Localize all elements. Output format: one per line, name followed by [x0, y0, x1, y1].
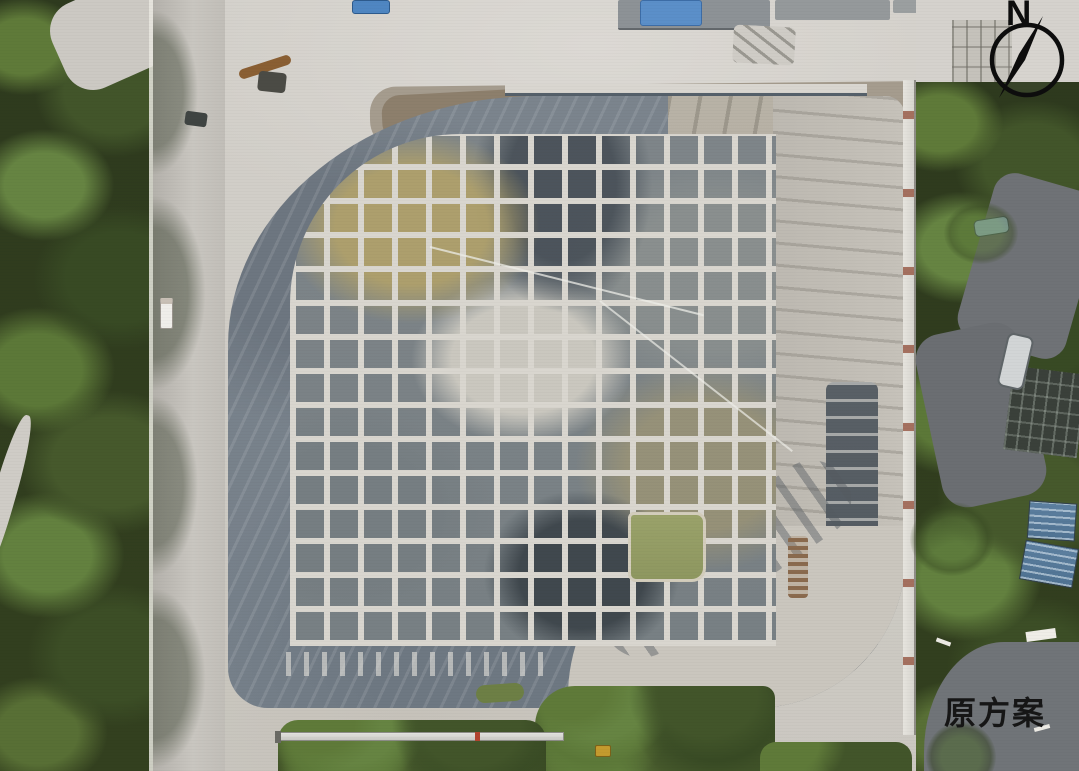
tree-clump: [910, 502, 994, 576]
road-marking: [936, 638, 951, 647]
east-grove: [916, 0, 1079, 771]
container: [775, 0, 890, 20]
east-boundary-wall: [903, 80, 916, 735]
pit-south-ribs: [286, 652, 552, 676]
excavator-body: [257, 71, 287, 94]
pipe-end: [275, 731, 281, 743]
excavation-pit: [228, 96, 905, 708]
vegetation-patch: [475, 682, 524, 703]
debris-pile: [732, 24, 796, 65]
pipe-marker: [475, 732, 480, 741]
east-tree-area: [916, 82, 1079, 771]
blue-roof-building: [1019, 540, 1079, 589]
rust-debris-patch: [788, 536, 808, 598]
parked-truck: [160, 298, 173, 329]
pit-capping-beam: [505, 84, 867, 96]
aerial-photo-canvas: N 原方案: [0, 0, 1079, 771]
road-sign: [1025, 628, 1056, 642]
caption-label: 原方案: [944, 688, 1046, 734]
parked-car: [184, 111, 208, 128]
south-tree-clump: [760, 742, 912, 771]
compass-label: N: [1006, 0, 1050, 38]
yellow-machine: [595, 745, 611, 757]
utility-pipe: [278, 732, 564, 741]
south-tree-clump: [278, 720, 546, 771]
south-tree-clump: [535, 686, 775, 771]
blue-tarp-load: [640, 0, 702, 26]
tree-clump: [944, 202, 1018, 264]
blue-truck: [352, 0, 390, 14]
left-tree-band: [0, 0, 158, 771]
pond: [628, 512, 706, 582]
blue-roof-building: [1027, 500, 1078, 541]
